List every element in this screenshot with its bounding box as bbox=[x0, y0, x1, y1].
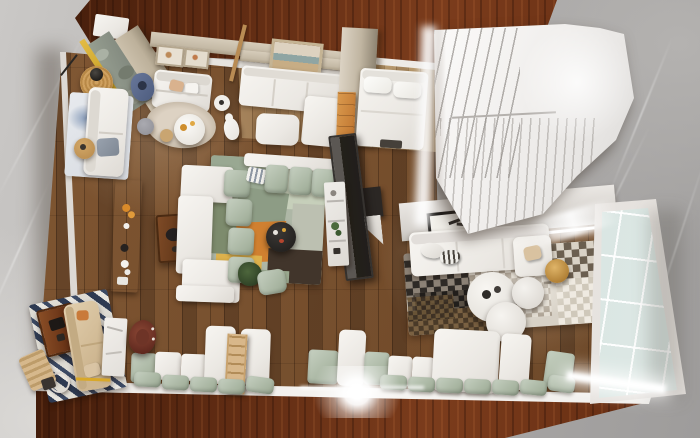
bench-cushion bbox=[218, 378, 246, 394]
marble-console bbox=[101, 317, 127, 376]
sage-cushion bbox=[227, 227, 254, 255]
walnut-console bbox=[111, 179, 143, 292]
wood-side-table bbox=[74, 138, 95, 159]
art-sketch bbox=[191, 53, 200, 61]
bench-cushion bbox=[190, 376, 218, 392]
shelf-decor bbox=[330, 190, 336, 196]
seat-seam bbox=[99, 132, 123, 135]
landing-highlight bbox=[520, 22, 634, 142]
seam bbox=[81, 341, 103, 346]
window-shadow bbox=[648, 210, 682, 400]
marble-vein-line bbox=[107, 326, 123, 332]
sage-cushion bbox=[288, 166, 313, 196]
sectional-back bbox=[243, 67, 343, 85]
orange-cushion bbox=[76, 310, 88, 320]
art-frame-rabbit-1 bbox=[155, 45, 185, 68]
tan-stool bbox=[160, 129, 173, 142]
table-decor bbox=[219, 100, 224, 105]
apartment-render bbox=[0, 0, 700, 438]
pillow bbox=[363, 76, 392, 94]
white-vase bbox=[124, 269, 130, 275]
dark-bowl bbox=[120, 244, 128, 252]
checker-rug-corner bbox=[407, 294, 455, 321]
gray-throw bbox=[96, 137, 119, 156]
table-decor bbox=[482, 290, 491, 299]
table-decor bbox=[273, 230, 278, 235]
sage-cushion bbox=[264, 164, 289, 194]
shelf-box bbox=[333, 248, 340, 254]
oak-cabinet bbox=[336, 92, 356, 139]
bench-cushion bbox=[464, 378, 492, 394]
table-decor bbox=[282, 228, 286, 232]
art-sketch bbox=[164, 50, 174, 59]
white-etagere bbox=[324, 182, 349, 267]
round-coffee-table bbox=[174, 114, 205, 145]
button bbox=[152, 337, 155, 340]
rug-patch bbox=[290, 203, 325, 255]
leather-seat bbox=[135, 328, 150, 346]
cream-sofa bbox=[83, 87, 129, 178]
gray-pouf bbox=[137, 118, 154, 135]
table-decor bbox=[80, 144, 86, 150]
black-round-table bbox=[266, 222, 296, 252]
dark-decor bbox=[56, 333, 65, 342]
bench-cushion bbox=[436, 377, 464, 393]
art-frame-rabbit-2 bbox=[183, 48, 210, 70]
white-cup bbox=[123, 223, 129, 229]
bench-cushion bbox=[162, 374, 190, 390]
table-decor bbox=[279, 239, 284, 243]
bench-cushion bbox=[134, 371, 162, 387]
sage-cushion bbox=[225, 198, 252, 226]
white-vase bbox=[121, 260, 129, 268]
orange-fruit bbox=[128, 211, 135, 218]
side-table bbox=[214, 95, 230, 111]
gold-stool bbox=[545, 259, 569, 283]
seam bbox=[501, 238, 505, 268]
pillow bbox=[393, 81, 422, 99]
white-ottoman bbox=[255, 113, 300, 146]
bench-cushion bbox=[492, 379, 520, 396]
white-slab-table bbox=[176, 285, 235, 303]
table-lamp bbox=[90, 68, 103, 81]
gold-bowl bbox=[180, 124, 187, 131]
lens-flare bbox=[312, 366, 402, 418]
bench-cushion bbox=[519, 379, 547, 397]
shelf-line bbox=[327, 200, 344, 202]
button bbox=[151, 327, 154, 330]
gold-decor bbox=[190, 121, 195, 126]
marble-vein-line bbox=[106, 351, 122, 354]
bench-cushion bbox=[408, 376, 436, 392]
shelf-line bbox=[329, 240, 346, 242]
seam bbox=[271, 79, 275, 106]
bed-end-bench bbox=[380, 139, 403, 149]
pouf-button bbox=[137, 80, 147, 90]
white-tray bbox=[117, 277, 128, 285]
duvet-fold bbox=[361, 110, 423, 116]
black-tray bbox=[48, 316, 66, 331]
table-decor bbox=[494, 286, 501, 293]
shelf-plant bbox=[335, 230, 341, 236]
tan-pillow bbox=[83, 362, 102, 379]
